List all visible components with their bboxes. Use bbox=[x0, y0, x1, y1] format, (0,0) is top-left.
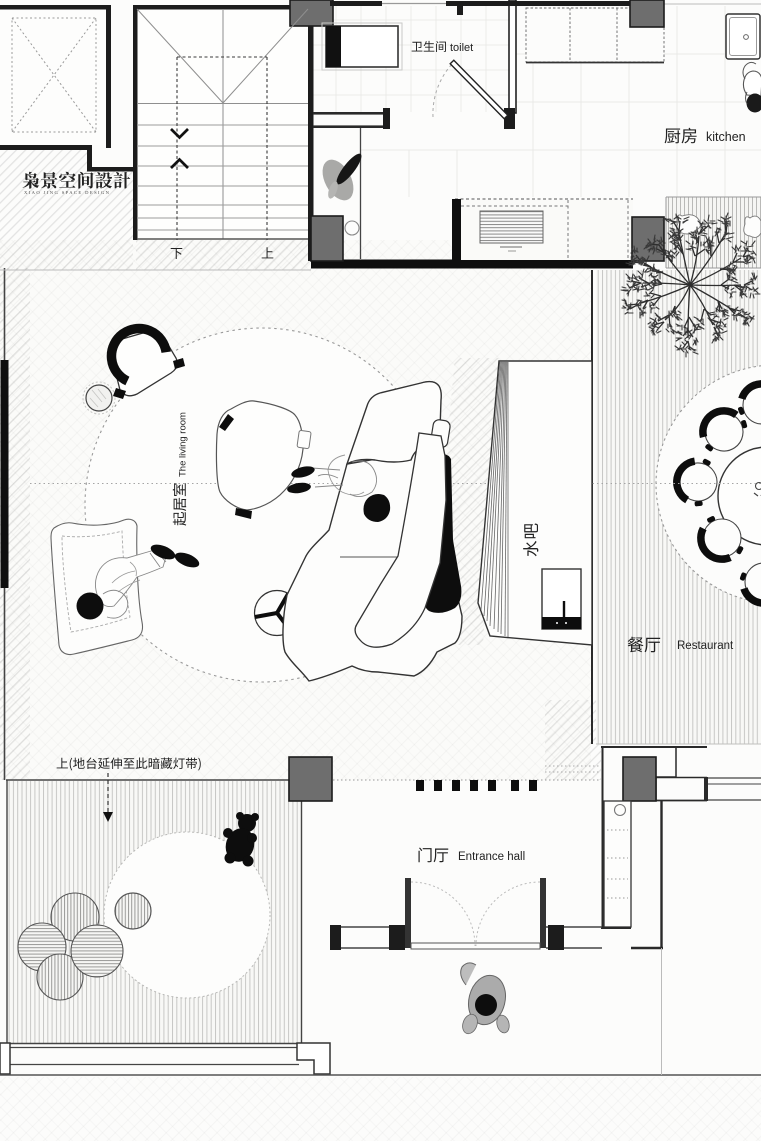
svg-text:kitchen: kitchen bbox=[706, 130, 746, 144]
svg-text:XIAO JING SPACE DESIGN: XIAO JING SPACE DESIGN bbox=[24, 190, 110, 195]
svg-text:Entrance hall: Entrance hall bbox=[458, 851, 525, 863]
svg-text:Restaurant: Restaurant bbox=[677, 640, 734, 652]
svg-text:toilet: toilet bbox=[450, 42, 473, 54]
svg-text:The living room: The living room bbox=[178, 412, 189, 477]
